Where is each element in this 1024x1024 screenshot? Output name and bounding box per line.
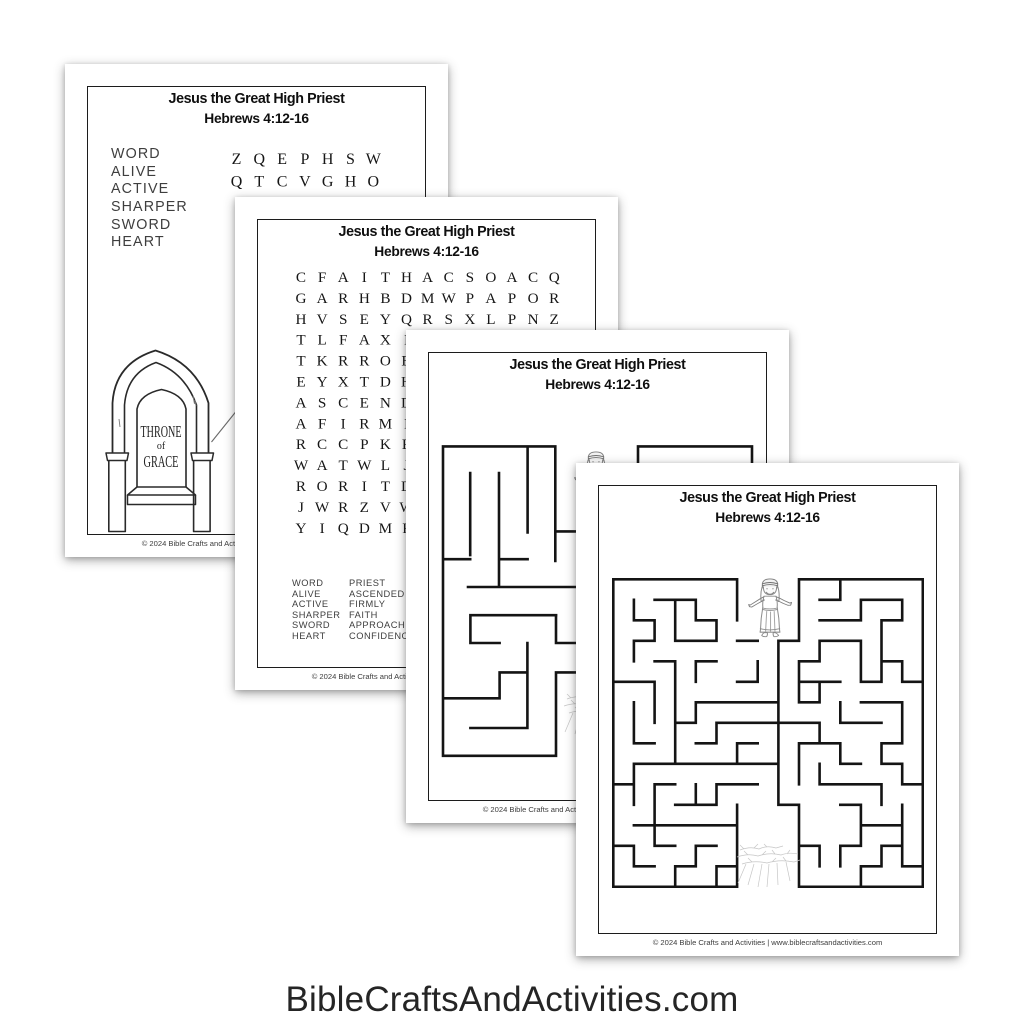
svg-text:ZQEPHSW: ZQEPHSW (232, 151, 382, 168)
svg-text:GARHBDMWPAPOR: GARHBDMWPAPOR (296, 290, 561, 307)
svg-text:CFAITHACSOACQ: CFAITHACSOACQ (296, 269, 560, 286)
svg-text:THRONE: THRONE (141, 422, 182, 441)
svg-text:GRACE: GRACE (144, 452, 179, 471)
svg-text:QTCVGHO: QTCVGHO (231, 174, 379, 191)
svg-text:of: of (157, 441, 166, 452)
svg-text:HVSEYQRSXLPNZ: HVSEYQRSXLPNZ (296, 311, 559, 328)
